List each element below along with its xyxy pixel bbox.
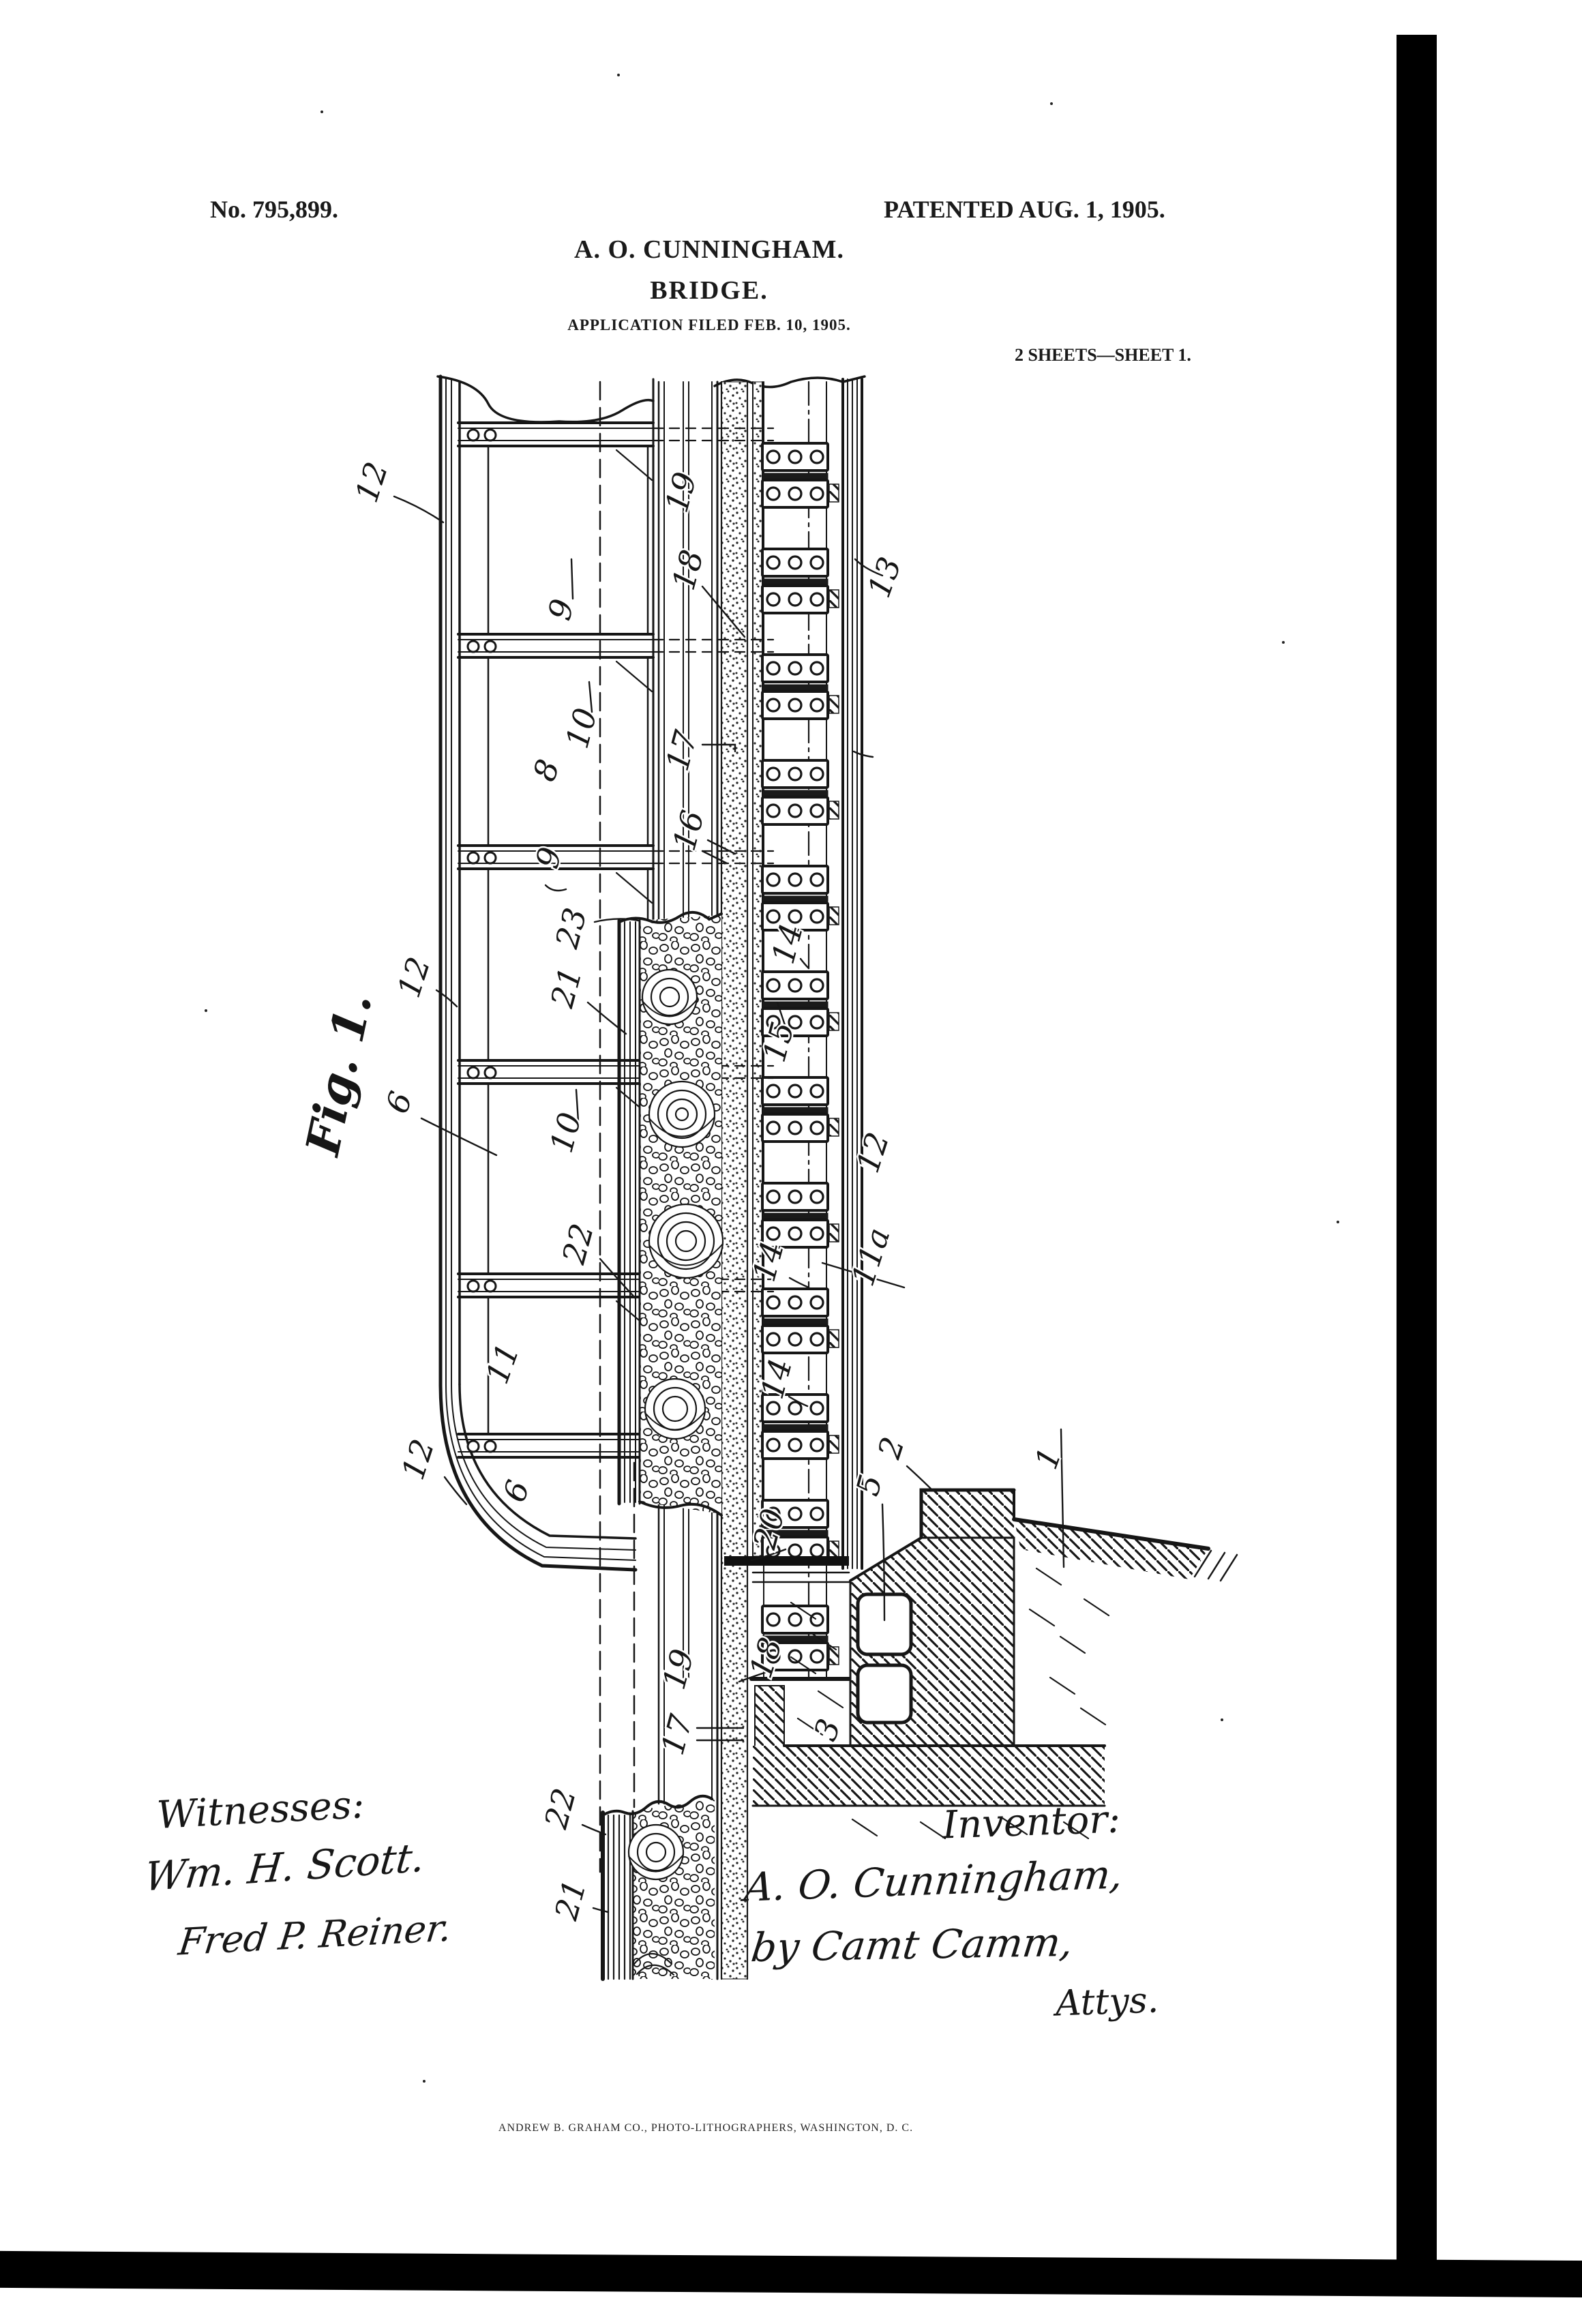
reference-numeral-5: 5 — [849, 1471, 890, 1500]
reference-numeral-11: 11 — [479, 1339, 527, 1388]
timber-grain-lower — [629, 1825, 683, 1879]
attorneys-label: Attys. — [1055, 1980, 1159, 2024]
inventor-heading: Inventor: — [942, 1797, 1121, 1847]
reference-numeral-18: 18 — [665, 546, 711, 595]
panel-verticals — [488, 379, 653, 1434]
application-filed-line: APPLICATION FILED FEB. 10, 1905. — [355, 316, 1064, 334]
reference-numeral-19: 19 — [655, 1645, 701, 1694]
reference-numeral-17: 17 — [654, 1710, 700, 1759]
reference-numeral-1: 1 — [1028, 1443, 1069, 1474]
figure-caption: Fig. 1. — [295, 989, 383, 1161]
reference-numeral-3: 3 — [807, 1714, 848, 1746]
reference-numeral-12: 12 — [390, 953, 437, 1002]
reference-numeral-12: 12 — [348, 458, 395, 507]
patent-drawing-fig1: 129191813108171691223211415610122211a141… — [259, 334, 1241, 1991]
reference-numeral-22: 22 — [537, 1785, 584, 1833]
scan-speck — [617, 74, 620, 76]
scan-speck — [320, 110, 323, 113]
reference-numeral-10: 10 — [543, 1109, 588, 1157]
right-rail-band — [843, 379, 862, 1568]
reference-numeral-12: 12 — [394, 1435, 441, 1484]
reference-numeral-21: 21 — [543, 964, 590, 1012]
reference-numeral-12: 12 — [849, 1128, 896, 1177]
scan-speck — [1221, 1718, 1223, 1721]
reference-numeral-21: 21 — [548, 1876, 594, 1924]
reference-numeral-10: 10 — [558, 704, 604, 753]
reference-numeral-6: 6 — [378, 1087, 420, 1118]
scan-edge-bar-right — [1397, 35, 1437, 2265]
scan-speck — [1337, 1221, 1339, 1223]
attorney-signature: by Camt Camm, — [749, 1919, 1076, 1971]
inventor-name-header: A. O. CUNNINGHAM. — [355, 235, 1064, 265]
patent-title: BRIDGE. — [355, 275, 1064, 306]
patent-number: No. 795,899. — [210, 195, 338, 224]
patented-date: PATENTED AUG. 1, 1905. — [884, 195, 1165, 224]
reference-numeral-13: 13 — [861, 552, 909, 602]
reference-numeral-23: 23 — [548, 904, 595, 953]
reference-numeral-8: 8 — [526, 755, 567, 786]
reference-numeral-16: 16 — [666, 807, 711, 855]
truss-chord — [441, 376, 636, 1570]
break-line-top — [438, 376, 865, 422]
scan-speck — [1282, 641, 1285, 644]
bottom-ballast — [603, 1796, 715, 1979]
lithographer-credit: ANDREW B. GRAHAM CO., PHOTO-LITHOGRAPHER… — [365, 2122, 1047, 2134]
scan-speck — [423, 2080, 426, 2083]
reference-numeral-9: 9 — [541, 595, 582, 624]
reference-numeral-22: 22 — [555, 1220, 601, 1268]
reference-numeral-2: 2 — [870, 1433, 912, 1463]
centerline-dashed — [600, 382, 634, 1872]
scan-speck — [205, 1009, 207, 1012]
reference-numeral-17: 17 — [659, 726, 704, 775]
scan-speck — [1050, 102, 1053, 105]
anchor-pocket — [858, 1665, 911, 1723]
scan-edge-bar-bottom — [0, 2251, 1582, 2297]
patent-sheet-page: { "page": { "patent_number_label": "No. … — [0, 0, 1582, 2324]
